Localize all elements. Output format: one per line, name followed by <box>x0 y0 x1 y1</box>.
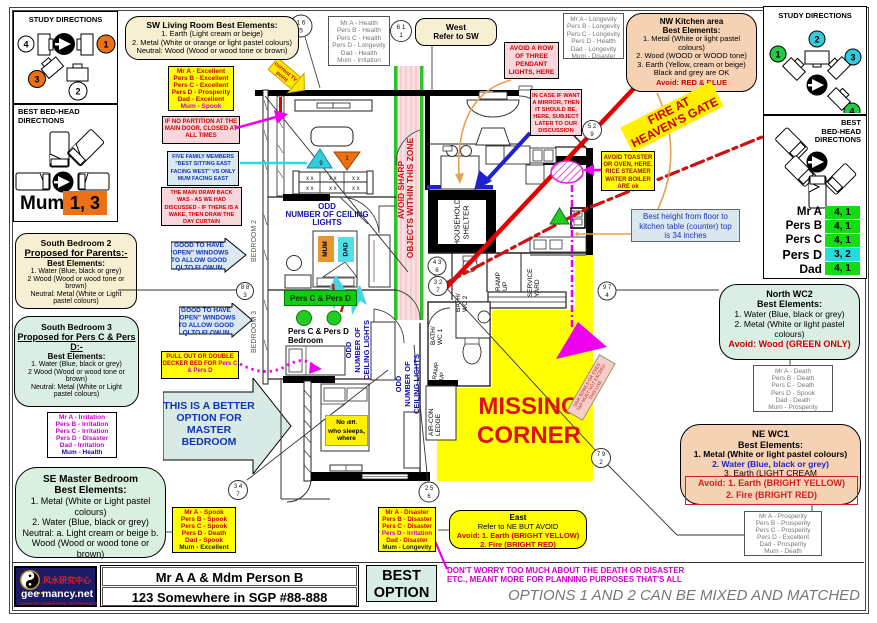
svg-text:NUMBER OF: NUMBER OF <box>403 361 412 407</box>
svg-text:2: 2 <box>814 35 819 45</box>
svg-text:Center for Applied Feng Shui R: Center for Applied Feng Shui Research <box>19 601 97 606</box>
svg-text:ODD: ODD <box>394 375 403 392</box>
svg-text:1: 1 <box>775 50 780 60</box>
svg-text:NUMBER OF: NUMBER OF <box>353 327 362 373</box>
svg-text:CEILING LIGHTS: CEILING LIGHTS <box>362 320 371 380</box>
svg-text:gee mancy.net: gee mancy.net <box>21 588 94 600</box>
svg-text:3: 3 <box>850 53 855 63</box>
svg-text:4: 4 <box>849 107 854 114</box>
svg-text:风水研究中心: 风水研究中心 <box>43 575 91 585</box>
svg-text:CEILING LIGHTS: CEILING LIGHTS <box>412 354 421 414</box>
svg-text:ODD: ODD <box>344 341 353 358</box>
